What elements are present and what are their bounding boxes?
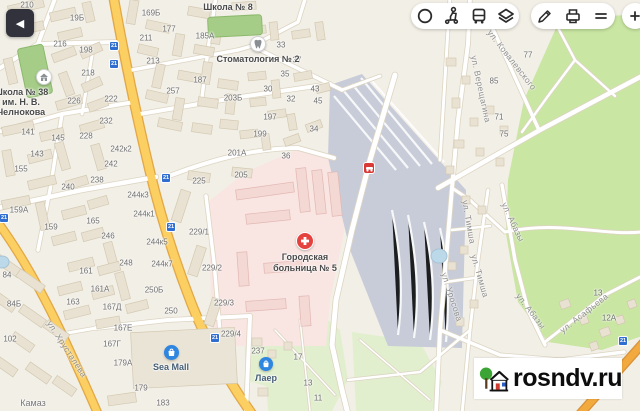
map-canvas[interactable] — [0, 0, 640, 411]
menu-lines-icon[interactable] — [589, 4, 613, 28]
transit-stop-badge[interactable]: 21 — [161, 173, 171, 183]
house-tree-logo — [479, 362, 509, 396]
scooter-person-icon[interactable] — [440, 4, 464, 28]
rosndv-watermark: rosndv.ru — [474, 358, 622, 399]
toolbar-group-2 — [531, 3, 615, 29]
extra-tool-button[interactable] — [622, 3, 640, 29]
bus-icon[interactable] — [467, 4, 491, 28]
transit-stop-badge[interactable]: 21 — [210, 333, 220, 343]
transit-stop-badge[interactable]: 21 — [0, 213, 9, 223]
pencil-icon[interactable] — [533, 4, 557, 28]
watermark-text: rosndv.ru — [513, 364, 622, 393]
plus-tool-icon — [624, 5, 640, 27]
transit-stop-badge[interactable]: 21 — [618, 336, 628, 346]
transit-stop-badge[interactable]: 21 — [109, 41, 119, 51]
traffic-ring-icon[interactable] — [413, 4, 437, 28]
transit-stop-badge[interactable]: 21 — [109, 59, 119, 69]
chevron-left-icon: ◀ — [16, 17, 24, 30]
layers-icon[interactable] — [494, 4, 518, 28]
car-accident-icon[interactable] — [363, 162, 375, 174]
back-button[interactable]: ◀ — [6, 9, 34, 37]
printer-icon[interactable] — [561, 4, 585, 28]
transit-stop-badge[interactable]: 21 — [166, 222, 176, 232]
map-screen: 21019Б169Б216198211213218226222177185А18… — [0, 0, 640, 411]
toolbar-group-1 — [411, 3, 519, 29]
